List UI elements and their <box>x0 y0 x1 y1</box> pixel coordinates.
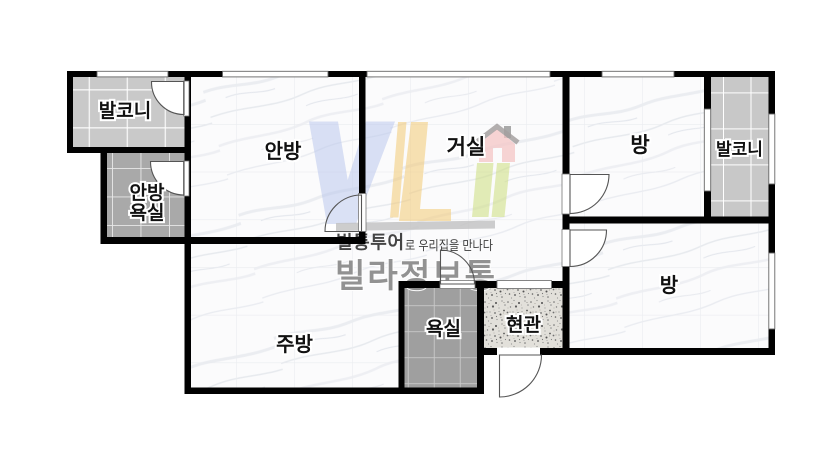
svg-text:방: 방 <box>630 134 649 157</box>
svg-text:욕실: 욕실 <box>130 202 165 224</box>
svg-text:욕실: 욕실 <box>426 318 461 340</box>
svg-text:거실: 거실 <box>447 136 486 159</box>
svg-text:발코니: 발코니 <box>99 100 151 122</box>
svg-text:안방: 안방 <box>265 140 302 163</box>
svg-text:방: 방 <box>660 274 679 297</box>
svg-text:현관: 현관 <box>506 314 541 336</box>
svg-text:주방: 주방 <box>276 333 313 356</box>
svg-text:안방: 안방 <box>130 182 165 204</box>
svg-text:발코니: 발코니 <box>716 140 763 159</box>
